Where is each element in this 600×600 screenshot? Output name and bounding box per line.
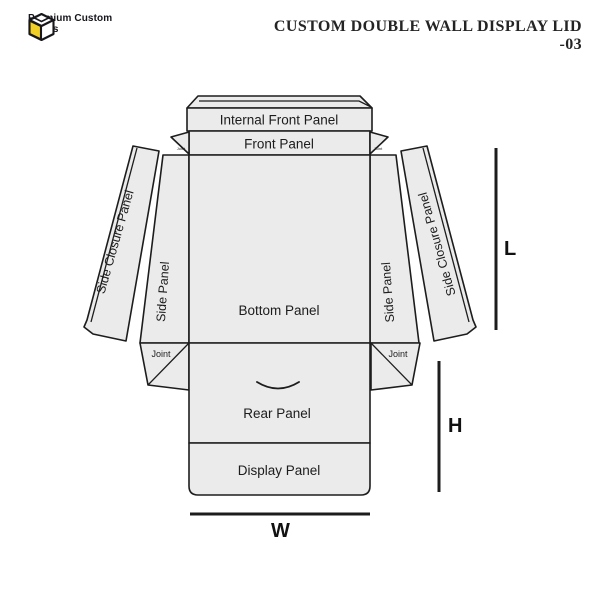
joint-bottom-right-label: Joint bbox=[388, 349, 408, 359]
dimension-length: L bbox=[496, 148, 516, 330]
joint-top-left: Joint bbox=[171, 132, 189, 154]
internal-front-panel: Internal Front Panel bbox=[187, 108, 372, 131]
top-tuck-flap bbox=[187, 96, 372, 108]
dimension-height-label: H bbox=[448, 415, 462, 437]
joint-top-right-label: Joint bbox=[374, 146, 383, 151]
bottom-panel: Bottom Panel bbox=[189, 155, 370, 343]
rear-panel-label: Rear Panel bbox=[243, 406, 311, 421]
dimension-length-label: L bbox=[504, 238, 516, 260]
dimension-width-label: W bbox=[271, 520, 290, 542]
joint-top-right: Joint bbox=[370, 132, 388, 154]
dieline-diagram: Internal Front Panel Front Panel Joint J… bbox=[0, 0, 600, 600]
display-panel-label: Display Panel bbox=[238, 463, 321, 478]
dimension-width: W bbox=[190, 514, 370, 542]
joint-bottom-left-label: Joint bbox=[151, 349, 171, 359]
dimension-height: H bbox=[439, 361, 462, 492]
internal-front-panel-label: Internal Front Panel bbox=[220, 113, 339, 128]
joint-top-left-label: Joint bbox=[177, 146, 186, 151]
joint-bottom-right: Joint bbox=[371, 343, 420, 390]
rear-panel: Rear Panel bbox=[189, 343, 370, 443]
display-panel: Display Panel bbox=[189, 443, 370, 495]
front-panel-label: Front Panel bbox=[244, 137, 314, 152]
front-panel: Front Panel bbox=[189, 131, 370, 155]
bottom-panel-label: Bottom Panel bbox=[238, 303, 319, 318]
joint-bottom-left: Joint bbox=[140, 343, 189, 390]
